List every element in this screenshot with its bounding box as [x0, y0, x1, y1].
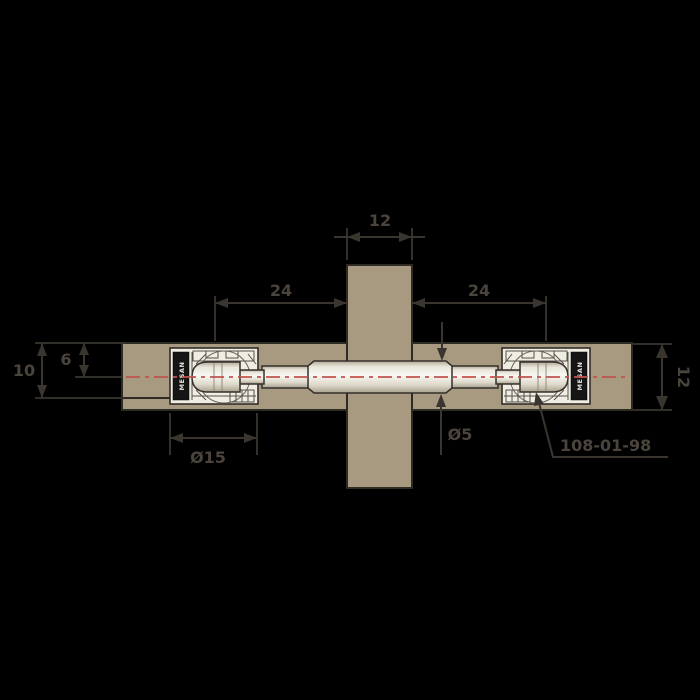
dim-label-left-drill-distance: 24	[270, 281, 292, 300]
dim-label-shaft-diameter: Ø5	[448, 425, 473, 444]
dim-housing-diameter: Ø15	[170, 413, 257, 467]
brand-label-left: MESAN	[178, 361, 186, 390]
dim-label-drill-depth: 10	[13, 361, 35, 380]
brand-label-right: MESAN	[576, 361, 584, 390]
dim-axis-offset: 6	[60, 343, 122, 377]
dim-label-right-drill-distance: 24	[468, 281, 490, 300]
dim-right-drill-distance: 24	[412, 281, 546, 341]
dim-label-partition-width: 12	[369, 211, 391, 230]
dim-label-panel-thickness: 12	[674, 366, 693, 388]
drawing-canvas: MESAN MESAN 12 24	[0, 0, 700, 700]
part-number-label: 108-01-98	[560, 436, 651, 455]
dim-left-drill-distance: 24	[215, 281, 347, 341]
dim-partition-width: 12	[334, 211, 425, 260]
dim-label-housing-diameter: Ø15	[190, 448, 226, 467]
dim-label-axis-offset: 6	[60, 350, 71, 369]
dim-panel-thickness: 12	[633, 344, 693, 410]
technical-drawing: MESAN MESAN 12 24	[0, 0, 700, 700]
